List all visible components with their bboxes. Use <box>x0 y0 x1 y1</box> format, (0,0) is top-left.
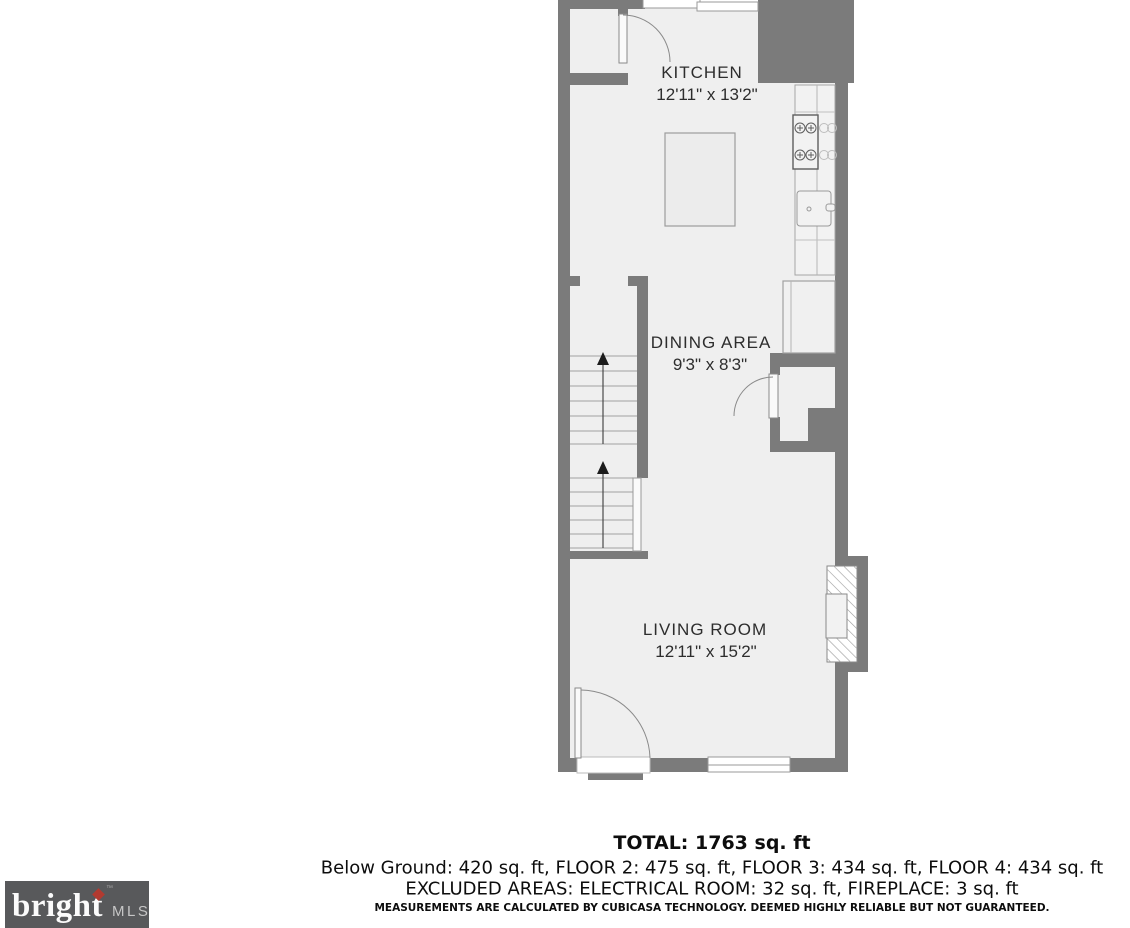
room-dims-kitchen: 12'11" x 13'2" <box>656 85 757 105</box>
entry-step <box>588 773 643 780</box>
entry-door-leaf <box>575 688 581 758</box>
summary-excluded: EXCLUDED AREAS: ELECTRICAL ROOM: 32 sq. … <box>405 879 1018 900</box>
summary-disclaimer: MEASUREMENTS ARE CALCULATED BY CUBICASA … <box>374 902 1049 914</box>
fireplace <box>826 566 857 662</box>
summary-floors: Below Ground: 420 sq. ft, FLOOR 2: 475 s… <box>321 858 1103 879</box>
logo-suffix-text: MLS <box>112 904 150 919</box>
floorplan-canvas <box>0 0 1130 928</box>
closet-door-leaf <box>619 14 627 63</box>
wall-dining-band <box>778 353 847 367</box>
wall-top-left <box>558 0 645 9</box>
kitchen-window-a <box>643 0 700 8</box>
kitchen-window-b <box>697 2 758 11</box>
kitchen-island <box>665 133 735 226</box>
wall-left <box>558 0 570 772</box>
dining-door-leaf <box>769 374 778 418</box>
room-label-kitchen: KITCHEN <box>661 63 743 83</box>
floorplan-page: { "floorplan": { "rooms": [ { "id": "kit… <box>0 0 1130 928</box>
wall-closet2-base <box>770 441 847 452</box>
room-dims-dining: 9'3" x 8'3" <box>673 355 747 375</box>
room-dims-living: 12'11" x 15'2" <box>655 642 756 662</box>
wall-stair-right <box>637 277 648 478</box>
summary-total: TOTAL: 1763 sq. ft <box>613 832 810 854</box>
sink <box>797 191 835 226</box>
room-label-living: LIVING ROOM <box>643 620 767 640</box>
entry-door-opening <box>577 757 650 773</box>
wall-stair-stub-left <box>570 276 580 286</box>
stair-railing <box>633 478 641 551</box>
wall-closet2-notch <box>808 408 835 443</box>
kitchen-counter <box>795 85 835 275</box>
room-label-dining: DINING AREA <box>651 333 772 353</box>
refrigerator <box>783 281 835 353</box>
logo-brand-text: bright <box>12 890 103 923</box>
wall-stair-bottom <box>558 551 648 559</box>
wall-stair-stub-right <box>628 276 648 286</box>
wall-closet2-top <box>770 353 780 375</box>
wall-closet-bottom <box>558 73 628 85</box>
bright-mls-logo: bright ™ MLS <box>5 881 149 928</box>
logo-trademark: ™ <box>106 885 113 892</box>
wall-closet2-bottom <box>770 417 780 443</box>
